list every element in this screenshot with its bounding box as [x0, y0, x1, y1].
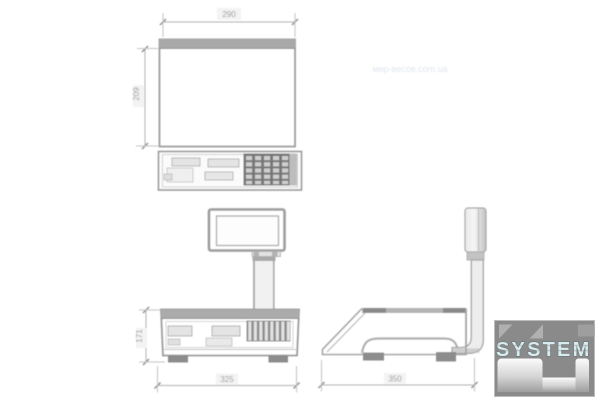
- svg-text:350: 350: [388, 375, 402, 384]
- svg-text:171: 171: [135, 329, 144, 343]
- svg-text:209: 209: [132, 87, 141, 101]
- svg-text:290: 290: [222, 10, 236, 19]
- svg-text:мир-весов.com.ua: мир-весов.com.ua: [372, 64, 447, 74]
- svg-text:325: 325: [220, 375, 234, 384]
